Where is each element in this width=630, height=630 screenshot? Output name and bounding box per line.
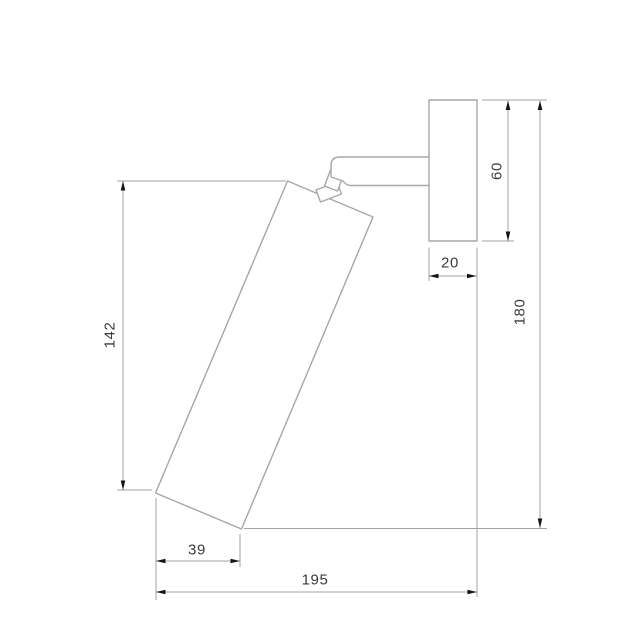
- lamp-outline-group: [156, 100, 478, 529]
- arrowhead-right: [468, 590, 478, 595]
- arrowhead-up: [121, 181, 126, 191]
- arrowhead-down: [121, 481, 126, 491]
- arrowhead-down: [538, 519, 543, 529]
- dimension-label-overall-height: 180: [513, 299, 528, 326]
- wall-plate: [429, 100, 477, 241]
- arrowhead-up: [538, 101, 543, 111]
- mounting-arm: [331, 157, 430, 186]
- drawing-canvas: [0, 0, 630, 630]
- dimension-label-overall-depth: 195: [302, 573, 329, 588]
- technical-drawing: 142 60 180 20 39 195: [0, 0, 630, 630]
- dimension-label-body-length: 142: [103, 322, 118, 349]
- arrowhead-down: [506, 232, 511, 242]
- dimension-label-body-bottom-offset: 39: [188, 543, 206, 558]
- arrowhead-up: [506, 101, 511, 111]
- dimension-label-plate-height: 60: [490, 162, 505, 180]
- arrowhead-right: [231, 559, 241, 564]
- arrowhead-left: [429, 274, 439, 279]
- arrowhead-left: [156, 559, 166, 564]
- arrowhead-left: [156, 590, 166, 595]
- dimension-label-plate-depth: 20: [441, 256, 459, 271]
- lamp-body: [156, 181, 374, 529]
- arrowhead-right: [467, 274, 477, 279]
